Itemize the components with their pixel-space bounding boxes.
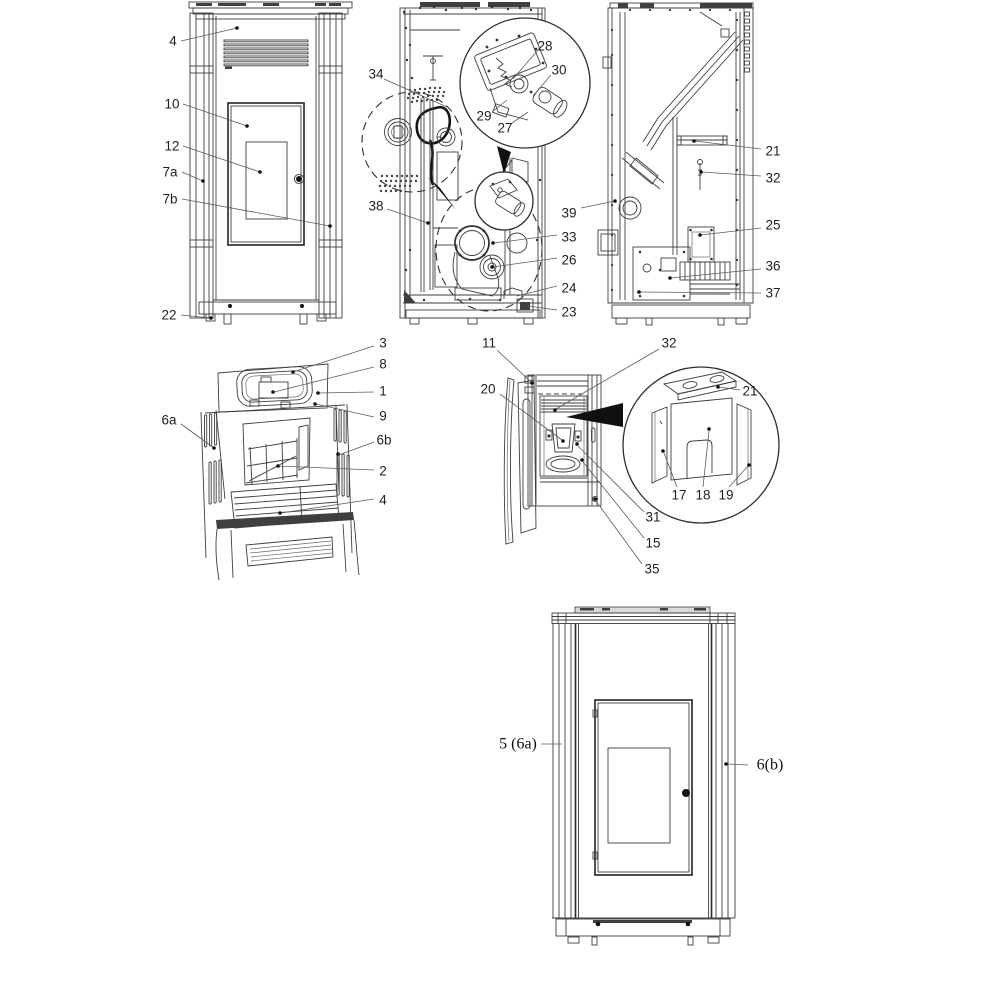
leader-line-top-view-6 xyxy=(281,499,374,513)
callout-rear-section-view-29: 29 xyxy=(476,109,491,124)
leader-line-side-panel-view-1 xyxy=(727,764,748,765)
leader-line-rear-section-view-10 xyxy=(528,306,557,310)
leader-line-front-view-2 xyxy=(183,146,260,172)
callout-side-panel-view-6b: 6(b) xyxy=(757,757,784,774)
callouts-top-view: 38196b246a xyxy=(161,336,391,515)
rear-section-view-drawing xyxy=(362,2,590,324)
callouts-side-panel-view: 5 (6a)6(b) xyxy=(499,736,783,774)
leader-dot-rear-section-view-6 xyxy=(613,199,617,203)
leader-line-open-door-view-9 xyxy=(596,501,642,564)
callout-top-view-3: 3 xyxy=(379,336,387,351)
leader-dot-top-view-1 xyxy=(271,390,275,394)
callout-side-section-view-21: 21 xyxy=(765,144,780,159)
callout-rear-section-view-26: 26 xyxy=(561,253,576,268)
callout-top-view-8: 8 xyxy=(379,357,387,372)
side-section-view-drawing xyxy=(598,3,753,325)
leader-dot-front-view-5 xyxy=(209,316,213,320)
callout-side-section-view-36: 36 xyxy=(765,259,780,274)
leader-dot-open-door-view-0 xyxy=(530,381,534,385)
leader-line-top-view-4 xyxy=(339,442,374,455)
callout-top-view-6b: 6b xyxy=(376,433,391,448)
leader-dot-open-door-view-5 xyxy=(707,427,711,431)
leader-line-top-view-3 xyxy=(316,404,374,417)
callout-open-door-view-21: 21 xyxy=(742,384,757,399)
callout-front-view-7b: 7b xyxy=(162,192,177,207)
callout-front-view-7a: 7a xyxy=(162,165,178,180)
leader-dot-open-door-view-1 xyxy=(553,408,557,412)
side-panel-view-drawing xyxy=(552,607,735,945)
callout-open-door-view-15: 15 xyxy=(645,536,660,551)
leader-dot-open-door-view-9 xyxy=(593,497,597,501)
front-grille xyxy=(224,40,308,69)
leader-dot-rear-section-view-1 xyxy=(426,221,430,225)
leader-dot-top-view-4 xyxy=(336,452,340,456)
leader-dot-side-section-view-0 xyxy=(692,139,696,143)
callout-open-door-view-18: 18 xyxy=(695,488,710,503)
callouts-side-section-view: 2132253637 xyxy=(637,139,780,300)
callout-front-view-12: 12 xyxy=(164,139,179,154)
rear-vent-slots xyxy=(745,12,750,72)
callout-rear-section-view-27: 27 xyxy=(497,121,512,136)
callout-rear-section-view-34: 34 xyxy=(368,67,384,82)
leader-line-side-section-view-2 xyxy=(701,228,761,235)
leader-dot-side-panel-view-1 xyxy=(724,762,728,766)
callout-rear-section-view-38: 38 xyxy=(368,199,383,214)
callout-top-view-1: 1 xyxy=(379,384,387,399)
callout-rear-section-view-30: 30 xyxy=(551,63,566,78)
callout-top-view-6a: 6a xyxy=(161,413,177,428)
callout-front-view-22: 22 xyxy=(161,308,176,323)
callouts-front-view: 410127a7b22 xyxy=(161,26,331,322)
leader-dot-open-door-view-7 xyxy=(575,442,579,446)
leader-line-rear-section-view-0 xyxy=(384,79,447,107)
leader-dot-open-door-view-6 xyxy=(747,463,751,467)
diagram-canvas: 410127a7b2234382830292739332624232132253… xyxy=(0,0,1000,1000)
leader-line-open-door-view-0 xyxy=(497,350,531,382)
leader-line-rear-section-view-6 xyxy=(581,201,615,208)
callout-open-door-view-35: 35 xyxy=(644,562,659,577)
callout-front-view-4: 4 xyxy=(169,34,177,49)
door-handle xyxy=(296,176,302,182)
leader-dot-rear-section-view-7 xyxy=(491,241,495,245)
leader-dot-open-door-view-3 xyxy=(716,385,720,389)
callout-rear-section-view-24: 24 xyxy=(561,281,577,296)
leader-dot-side-section-view-4 xyxy=(637,290,641,294)
callout-side-section-view-25: 25 xyxy=(765,218,780,233)
leader-line-side-section-view-1 xyxy=(702,172,761,176)
leader-line-rear-section-view-9 xyxy=(517,286,557,296)
leader-dot-front-view-4 xyxy=(328,224,332,228)
side-vent-slots xyxy=(205,409,350,504)
callout-side-section-view-32: 32 xyxy=(765,171,780,186)
leader-dot-open-door-view-4 xyxy=(661,449,665,453)
leader-line-side-section-view-3 xyxy=(671,269,761,278)
callout-open-door-view-11: 11 xyxy=(482,336,496,351)
front-view-drawing xyxy=(189,2,352,324)
callout-front-view-10: 10 xyxy=(164,97,179,112)
leader-dot-front-view-0 xyxy=(235,26,239,30)
callout-open-door-view-31: 31 xyxy=(645,510,660,525)
leader-dot-front-view-3 xyxy=(201,179,205,183)
leader-dot-open-door-view-8 xyxy=(580,458,584,462)
leader-line-rear-section-view-7 xyxy=(494,235,557,243)
leader-dot-top-view-3 xyxy=(313,402,317,406)
callout-side-section-view-37: 37 xyxy=(765,286,780,301)
screw-dots xyxy=(611,9,738,291)
top-view-drawing xyxy=(201,364,359,580)
leader-line-rear-section-view-1 xyxy=(387,209,428,223)
leader-line-side-section-view-4 xyxy=(640,292,761,293)
leader-line-front-view-3 xyxy=(182,172,203,181)
leader-dot-front-view-1 xyxy=(245,124,249,128)
leader-dot-side-section-view-1 xyxy=(699,170,703,174)
callout-rear-section-view-23: 23 xyxy=(561,305,576,320)
side-door-handle xyxy=(682,789,690,797)
leader-dot-front-view-2 xyxy=(258,170,262,174)
callout-rear-section-view-33: 33 xyxy=(561,230,576,245)
leader-dot-top-view-5 xyxy=(276,464,280,468)
callout-open-door-view-20: 20 xyxy=(480,382,495,397)
leader-line-top-view-0 xyxy=(293,346,374,372)
callout-rear-section-view-28: 28 xyxy=(537,39,552,54)
callout-side-panel-view-56a: 5 (6a) xyxy=(499,736,537,753)
leader-dot-side-section-view-2 xyxy=(698,233,702,237)
leader-dot-rear-section-view-8 xyxy=(490,265,494,269)
leader-dot-top-view-6 xyxy=(278,511,282,515)
leader-line-front-view-1 xyxy=(183,104,247,126)
leader-dot-top-view-7 xyxy=(212,446,216,450)
parts-diagram-page: 410127a7b2234382830292739332624232132253… xyxy=(0,0,1000,1000)
open-door-view-drawing xyxy=(504,367,779,544)
leader-dot-top-view-0 xyxy=(291,370,295,374)
leader-dot-top-view-2 xyxy=(316,391,320,395)
callout-open-door-view-19: 19 xyxy=(718,488,733,503)
callout-top-view-9: 9 xyxy=(379,409,387,424)
callout-top-view-2: 2 xyxy=(379,464,387,479)
callout-open-door-view-17: 17 xyxy=(671,488,686,503)
callout-top-view-4: 4 xyxy=(379,493,387,508)
front-door xyxy=(228,103,304,245)
callout-open-door-view-32: 32 xyxy=(661,336,676,351)
leader-dot-side-section-view-3 xyxy=(668,276,672,280)
leader-line-rear-section-view-8 xyxy=(493,258,557,267)
callout-rear-section-view-39: 39 xyxy=(561,206,576,221)
leader-line-top-view-5 xyxy=(254,466,374,478)
leader-dot-open-door-view-2 xyxy=(561,439,565,443)
side-access-door xyxy=(593,700,692,875)
hopper-lid xyxy=(236,366,313,407)
leader-line-open-door-view-2 xyxy=(500,394,562,440)
